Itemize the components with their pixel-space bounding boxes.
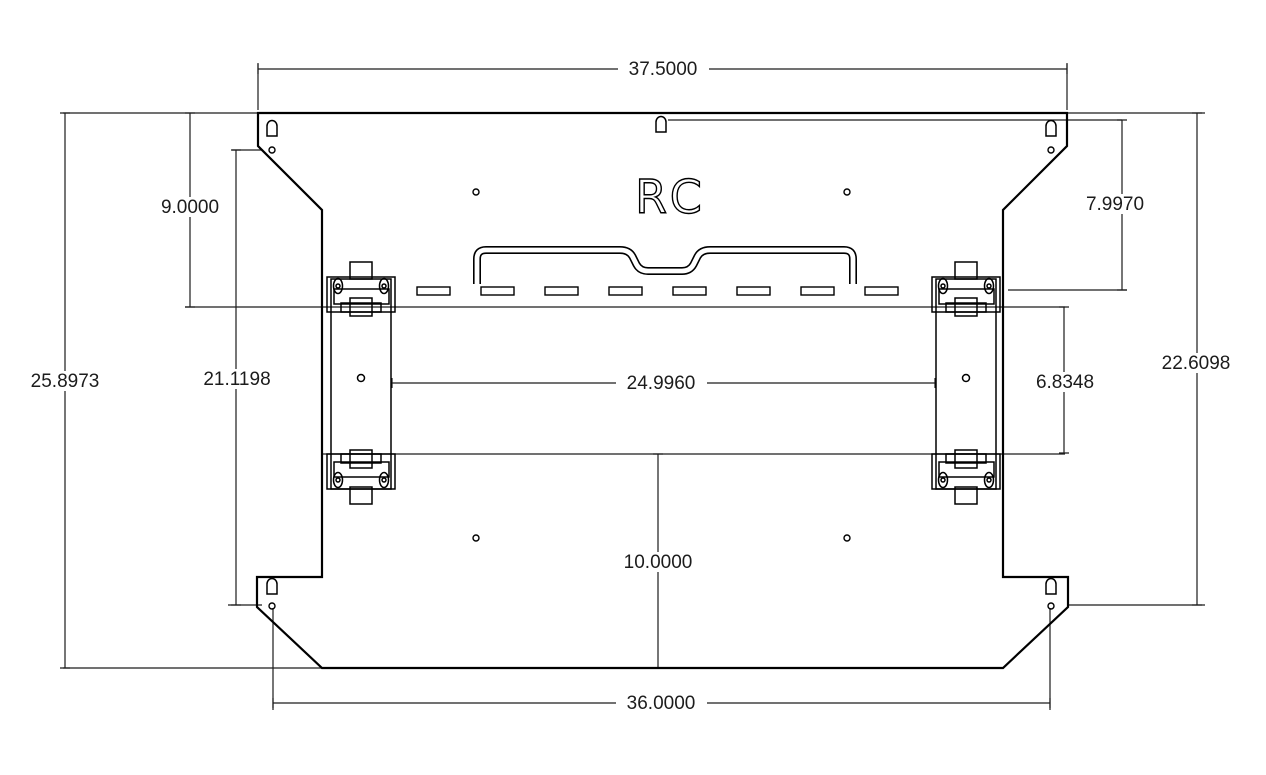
- mounting-bracket-left: [327, 262, 395, 504]
- dim-upper-left-offset: 9.0000: [161, 197, 219, 218]
- logo-text: RC: [635, 170, 707, 224]
- mounting-bracket-right: [932, 262, 1000, 504]
- dim-bottom-width: 36.0000: [627, 693, 696, 714]
- dim-overall-height-right: 22.6098: [1162, 353, 1231, 374]
- dim-lower-center-height: 10.0000: [624, 552, 693, 573]
- dim-inner-height-left: 21.1198: [203, 369, 270, 390]
- dim-upper-right-offset: 7.9970: [1086, 194, 1144, 215]
- keyhole-slot-icon: [267, 121, 277, 137]
- keyhole-slot-icon: [1046, 121, 1056, 137]
- keyhole-slot-icon: [656, 117, 666, 133]
- keyhole-slot-icon: [1046, 579, 1056, 595]
- slot-row: [417, 287, 898, 295]
- drawing-page: RC: [0, 0, 1266, 775]
- dim-top-width: 37.5000: [629, 59, 698, 80]
- engineering-drawing-canvas: RC: [0, 0, 1266, 775]
- torque-tube: [477, 250, 853, 284]
- dim-overall-height-left: 25.8973: [31, 371, 100, 392]
- keyhole-slot-icon: [267, 579, 277, 595]
- dim-spacer-height-right: 6.8348: [1036, 372, 1094, 393]
- dim-bracket-span: 24.9960: [627, 373, 696, 394]
